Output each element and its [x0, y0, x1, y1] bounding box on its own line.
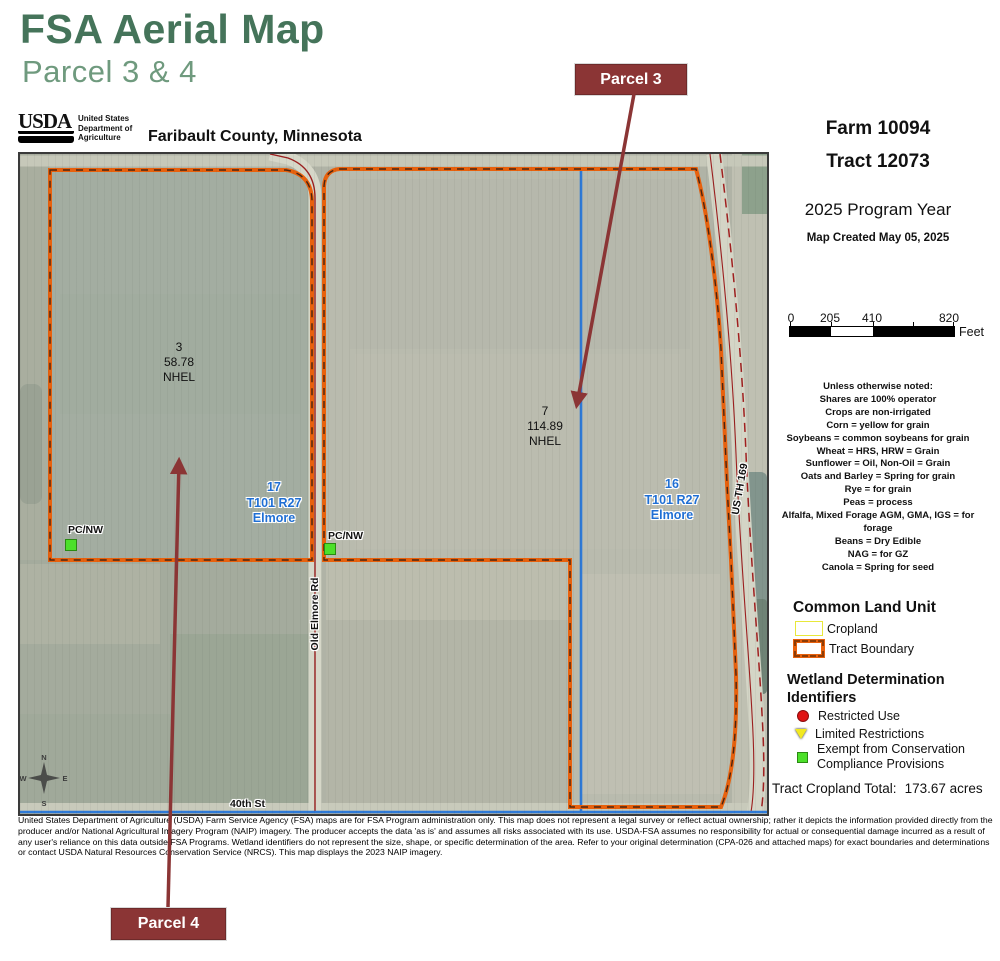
field-7-acres: 114.89: [505, 419, 585, 434]
scale-bar-graphic: [789, 326, 955, 337]
legend-wetland-title: Wetland Determination Identifiers: [787, 671, 977, 707]
wetland-point-2-marker: [324, 543, 336, 555]
field-3-hel: NHEL: [139, 370, 219, 385]
compass-s: S: [41, 799, 46, 808]
cropland-swatch: [795, 621, 823, 636]
road-label-40th-st: 40th St: [230, 798, 265, 810]
section-17-label: 17 T101 R27 Elmore: [234, 480, 314, 527]
legend-clu-title: Common Land Unit: [793, 599, 936, 617]
usda-logo-bar: [18, 136, 74, 143]
legend-exempt-row: Exempt from Conservation Compliance Prov…: [787, 742, 965, 772]
scale-tick-410: 410: [862, 311, 882, 325]
usda-logo-word: USDA: [18, 112, 74, 130]
page-title: FSA Aerial Map: [20, 6, 325, 53]
note-line: Wheat = HRS, HRW = Grain: [770, 446, 986, 459]
scale-bar-labels: 0 205 410 820: [789, 311, 959, 326]
map-created-date: Map Created May 05, 2025: [770, 232, 986, 244]
note-line: Canola = Spring for seed: [770, 562, 986, 575]
program-year: 2025 Program Year: [770, 200, 986, 220]
note-line: Crops are non-irrigated: [770, 407, 986, 420]
note-line: Peas = process: [770, 497, 986, 510]
field-7-hel: NHEL: [505, 434, 585, 449]
aerial-map: N E S W 3 58.78 NHEL 7 114.89 NHEL 17 T1…: [18, 152, 769, 816]
section-16-town: Elmore: [632, 508, 712, 524]
parcel4-callout: Parcel 4: [111, 908, 226, 940]
disclaimer-text: United States Department of Agriculture …: [18, 815, 993, 858]
section-16-township: T101 R27: [632, 493, 712, 509]
note-line: Oats and Barley = Spring for grain: [770, 471, 986, 484]
tract-cropland-total: Tract Cropland Total:173.67 acres: [772, 781, 983, 796]
page-subtitle: Parcel 3 & 4: [22, 54, 197, 90]
field-3-number: 3: [139, 340, 219, 355]
note-line: Beans = Dry Edible: [770, 536, 986, 549]
legend-cropland-row: Cropland: [795, 621, 878, 636]
note-line: Alfalfa, Mixed Forage AGM, GMA, IGS = fo…: [770, 510, 986, 536]
limited-restrictions-label: Limited Restrictions: [815, 727, 924, 741]
fsa-aerial-map-page: FSA Aerial Map Parcel 3 & 4 USDA United …: [0, 0, 1000, 961]
exempt-label: Exempt from Conservation Compliance Prov…: [817, 742, 965, 772]
restricted-use-label: Restricted Use: [818, 709, 900, 723]
field-3-acres: 58.78: [139, 355, 219, 370]
usda-line-1: United States: [78, 114, 132, 124]
section-17-township: T101 R27: [234, 496, 314, 512]
usda-agency-text: United States Department of Agriculture: [78, 114, 132, 143]
exempt-label-line2: Compliance Provisions: [817, 757, 944, 771]
county-title: Faribault County, Minnesota: [148, 128, 362, 146]
usda-logo: USDA: [18, 112, 74, 143]
farm-number: Farm 10094: [770, 118, 986, 140]
tract-number: Tract 12073: [770, 151, 986, 173]
scale-tick-0: 0: [788, 311, 795, 325]
note-line: Rye = for grain: [770, 484, 986, 497]
scale-tick-205: 205: [820, 311, 840, 325]
cropland-label: Cropland: [827, 622, 878, 636]
usda-line-2: Department of: [78, 124, 132, 134]
legend-tract-row: Tract Boundary: [793, 639, 914, 658]
scale-seg-3: [873, 327, 954, 336]
note-line: Unless otherwise noted:: [770, 381, 986, 394]
exempt-label-line1: Exempt from Conservation: [817, 742, 965, 756]
total-value: 173.67 acres: [905, 781, 983, 796]
note-line: Sunflower = Oil, Non-Oil = Grain: [770, 458, 986, 471]
note-line: Corn = yellow for grain: [770, 420, 986, 433]
map-notes: Unless otherwise noted: Shares are 100% …: [770, 381, 986, 575]
wetland-point-1-label: PC/NW: [68, 524, 103, 536]
scale-unit: Feet: [959, 325, 984, 339]
section-16-number: 16: [632, 477, 712, 493]
parcel3-callout: Parcel 3: [575, 64, 687, 95]
scale-bar: 0 205 410 820 Feet: [789, 311, 959, 337]
section-17-number: 17: [234, 480, 314, 496]
section-17-town: Elmore: [234, 511, 314, 527]
wetland-point-2-label: PC/NW: [328, 530, 363, 542]
usda-line-3: Agriculture: [78, 133, 132, 143]
legend-limited-row: Limited Restrictions: [786, 727, 924, 741]
scale-tick-820: 820: [939, 311, 959, 325]
wetland-point-1-marker: [65, 539, 77, 551]
compass-n: N: [41, 753, 46, 762]
field-3-label: 3 58.78 NHEL: [139, 340, 219, 385]
note-line: NAG = for GZ: [770, 549, 986, 562]
field-7-number: 7: [505, 404, 585, 419]
note-line: Soybeans = common soybeans for grain: [770, 433, 986, 446]
field-7-label: 7 114.89 NHEL: [505, 404, 585, 449]
total-label: Tract Cropland Total:: [772, 781, 897, 796]
tract-boundary-swatch: [793, 639, 825, 658]
compass-w: W: [20, 774, 27, 783]
note-line: Shares are 100% operator: [770, 394, 986, 407]
section-16-label: 16 T101 R27 Elmore: [632, 477, 712, 524]
road-label-old-elmore: Old Elmore Rd: [309, 578, 321, 651]
restricted-use-icon: [797, 710, 809, 722]
compass-e: E: [62, 774, 67, 783]
tract-boundary-label: Tract Boundary: [829, 642, 914, 656]
exempt-icon: [797, 752, 808, 763]
scale-seg-1: [790, 327, 831, 336]
legend-restricted-row: Restricted Use: [787, 709, 900, 723]
limited-restrictions-icon: [795, 729, 807, 739]
scale-seg-2: [831, 327, 873, 336]
